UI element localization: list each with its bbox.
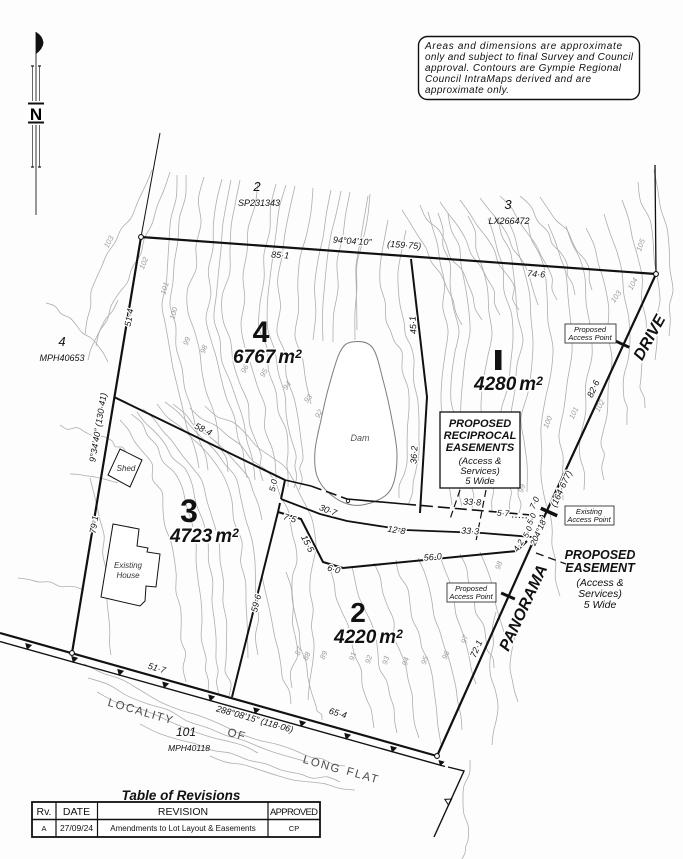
- svg-text:Access Point: Access Point: [448, 592, 493, 601]
- svg-text:DATE: DATE: [63, 806, 90, 818]
- svg-text:Access Point: Access Point: [567, 333, 612, 342]
- svg-text:6767m2: 6767m2: [233, 347, 302, 368]
- svg-text:3: 3: [180, 493, 198, 529]
- svg-text:Table of Revisions: Table of Revisions: [122, 788, 241, 803]
- svg-text:A: A: [41, 824, 46, 833]
- svg-text:Amendments to Lot Layout & Eas: Amendments to Lot Layout & Easements: [110, 824, 255, 833]
- svg-text:4280m2: 4280m2: [473, 374, 543, 395]
- svg-text:2: 2: [252, 179, 261, 194]
- svg-text:Dam: Dam: [350, 433, 370, 443]
- svg-text:33·3: 33·3: [461, 526, 480, 537]
- svg-text:5 Wide: 5 Wide: [584, 599, 617, 611]
- svg-text:3: 3: [504, 197, 512, 212]
- svg-text:4: 4: [58, 334, 65, 349]
- svg-text:EASEMENTS: EASEMENTS: [446, 442, 515, 454]
- svg-text:MPH40118: MPH40118: [168, 743, 210, 753]
- svg-text:5·7: 5·7: [497, 508, 510, 519]
- svg-text:4: 4: [253, 316, 270, 349]
- svg-text:74·6: 74·6: [527, 268, 546, 279]
- svg-text:4723m2: 4723m2: [169, 526, 239, 547]
- svg-text:33·8: 33·8: [463, 497, 482, 508]
- svg-text:only and subject to final Surv: only and subject to final Survey and Cou…: [425, 52, 634, 63]
- svg-text:4220m2: 4220m2: [333, 627, 403, 648]
- svg-text:REVISION: REVISION: [158, 806, 208, 818]
- svg-text:Council IntraMaps derived and: Council IntraMaps derived and are: [425, 74, 591, 85]
- svg-text:5 Wide: 5 Wide: [465, 476, 494, 487]
- svg-text:2: 2: [350, 597, 366, 628]
- svg-text:Areas and dimensions are appro: Areas and dimensions are approximate: [424, 41, 622, 52]
- svg-text:PROPOSED: PROPOSED: [449, 418, 511, 430]
- svg-text:N: N: [30, 105, 42, 124]
- svg-text:RECIPROCAL: RECIPROCAL: [444, 430, 517, 442]
- svg-text:101: 101: [176, 725, 196, 739]
- svg-text:MPH40653: MPH40653: [39, 353, 84, 363]
- svg-text:Shed: Shed: [117, 464, 136, 473]
- svg-text:EASEMENT: EASEMENT: [565, 561, 636, 575]
- svg-text:House: House: [116, 571, 140, 580]
- svg-text:56·0: 56·0: [423, 551, 442, 563]
- svg-text:LX266472: LX266472: [488, 216, 529, 226]
- svg-text:27/09/24: 27/09/24: [60, 823, 93, 833]
- svg-text:approval. Contours are Gympie: approval. Contours are Gympie Regional: [425, 63, 622, 74]
- svg-text:Access Point: Access Point: [566, 515, 611, 524]
- svg-text:36·2: 36·2: [408, 446, 419, 465]
- svg-text:45·1: 45·1: [408, 316, 419, 335]
- svg-text:85·1: 85·1: [271, 249, 290, 260]
- svg-text:Existing: Existing: [114, 561, 143, 570]
- svg-text:SP231343: SP231343: [238, 198, 280, 208]
- svg-text:PROPOSED: PROPOSED: [565, 548, 636, 562]
- svg-text:CP: CP: [289, 824, 299, 833]
- svg-text:APPROVED: APPROVED: [270, 807, 318, 818]
- svg-text:approximate only.: approximate only.: [425, 85, 509, 96]
- svg-text:Rv.: Rv.: [37, 806, 52, 818]
